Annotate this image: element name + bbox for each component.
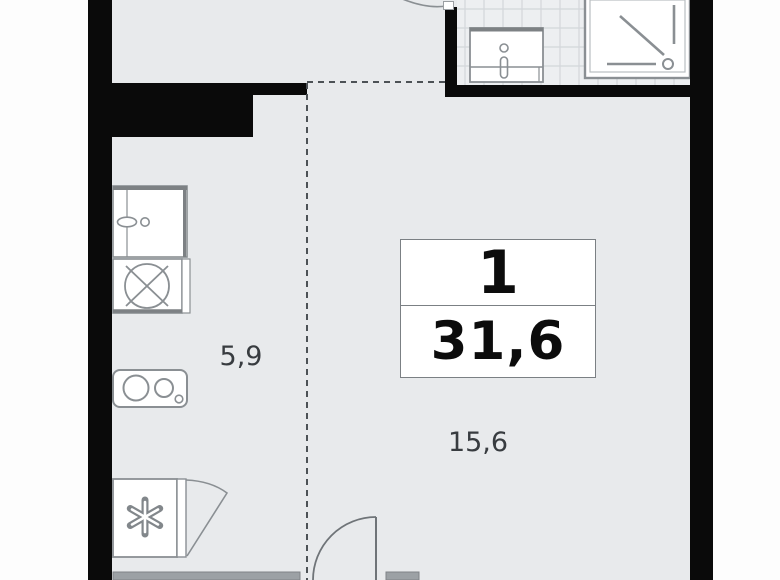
wall-bathroom-bottom — [445, 85, 713, 97]
kitchen-area-label: 5,9 — [191, 341, 291, 372]
washing-machine — [113, 186, 187, 257]
stove-two-burners — [113, 370, 187, 407]
bathroom-door-leaf-end — [444, 2, 454, 10]
bathroom-sink — [470, 28, 543, 82]
floor-plan-drawing — [0, 0, 780, 580]
unit-info-box: 1 31,6 — [400, 239, 596, 378]
rooms-count-label: 1 — [401, 240, 595, 306]
wall-kitchen-lip — [253, 83, 307, 95]
refrigerator — [113, 479, 177, 557]
wall-kitchen-pier — [112, 83, 253, 137]
floor-plan: 1 31,6 5,9 15,6 — [0, 0, 780, 580]
wall-bathroom-left — [445, 7, 457, 85]
shower-cabin — [585, 0, 690, 78]
kitchen-sink-cross — [113, 259, 190, 313]
living-room-area-label: 15,6 — [418, 427, 538, 458]
wall-left — [88, 0, 112, 580]
total-area-label: 31,6 — [401, 306, 595, 377]
